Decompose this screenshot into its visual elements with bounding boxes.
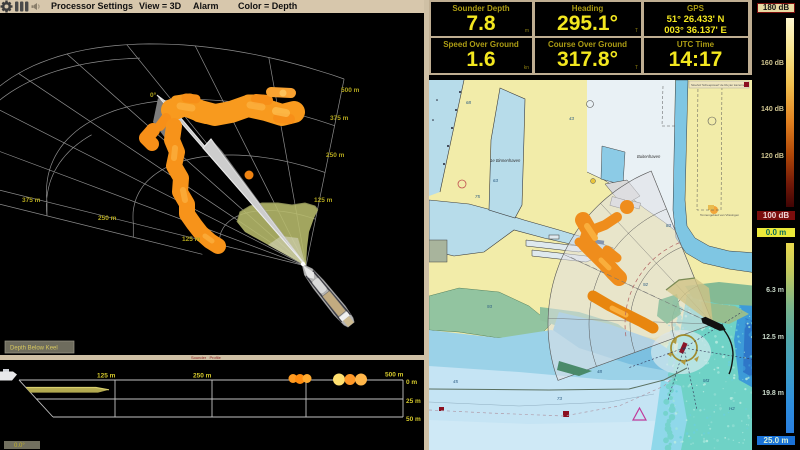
svg-text:M3: M3 [703,378,710,383]
svg-text:250 m: 250 m [193,373,212,380]
svg-text:50 m: 50 m [406,416,421,423]
svg-text:1e Binnenhaven: 1e Binnenhaven [490,158,521,163]
svg-text:500 m: 500 m [385,372,404,379]
svg-text:73: 73 [557,396,563,401]
svg-text:0°: 0° [150,91,157,99]
svg-text:250 m: 250 m [98,215,117,222]
svg-text:63: 63 [493,178,499,183]
svg-text:375 m: 375 m [22,197,41,204]
svg-text:Tonnengebied van Vlissingen: Tonnengebied van Vlissingen [700,213,739,217]
svg-text:92: 92 [643,282,649,287]
svg-text:45: 45 [453,379,459,384]
svg-text:375 m: 375 m [330,115,349,122]
svg-text:Buitenhaven: Buitenhaven [637,154,661,159]
svg-text:125 m: 125 m [314,197,333,204]
svg-text:Depth Below Keel: Depth Below Keel [10,346,58,352]
svg-text:43: 43 [569,116,575,121]
svg-text:93: 93 [487,304,493,309]
svg-text:75: 75 [475,194,481,199]
svg-text:500 m: 500 m [341,87,360,94]
svg-text:H2: H2 [729,406,735,411]
svg-text:250 m: 250 m [326,152,345,159]
svg-text:48: 48 [597,369,603,374]
svg-text:0.0°: 0.0° [14,443,25,449]
svg-text:68: 68 [466,100,472,105]
svg-text:83: 83 [666,223,672,228]
svg-text:0 m: 0 m [406,379,417,386]
svg-text:25 m: 25 m [406,398,421,405]
svg-text:125 m: 125 m [97,373,116,380]
svg-text:125 m: 125 m [182,236,201,243]
svg-text:Sloehof Scheepswerf de Ruyter: Sloehof Scheepswerf de Ruyter kazerne [691,83,745,87]
